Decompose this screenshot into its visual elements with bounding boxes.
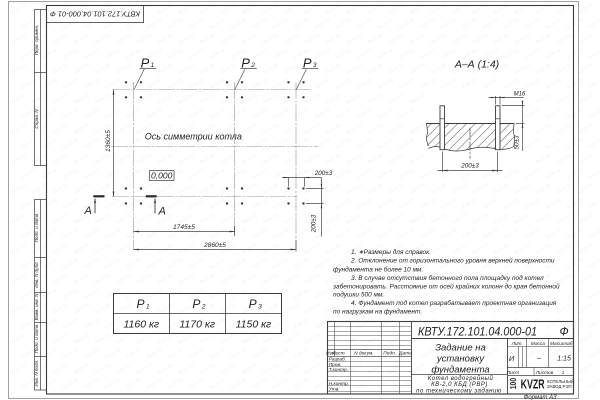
svg-text:kvzr.ru: kvzr.ru [482,17,499,30]
svg-text:Подп. и дата: Подп. и дата [34,213,39,242]
svg-text:kvzr.ru: kvzr.ru [146,107,163,120]
svg-text:kvzr.ru: kvzr.ru [524,77,541,90]
svg-text:kvzr.ru: kvzr.ru [262,92,279,105]
svg-text:kvzr.ru: kvzr.ru [535,152,552,165]
svg-text:kvzr.ru: kvzr.ru [178,242,195,255]
svg-text:1360±5: 1360±5 [105,130,112,152]
svg-text:kvzr.ru: kvzr.ru [472,242,489,255]
svg-text:1: 1 [151,62,155,69]
svg-text:kvzr.ru: kvzr.ru [409,62,426,75]
svg-text:kvzr.ru: kvzr.ru [388,332,405,345]
svg-text:kvzr.ru: kvzr.ru [41,257,58,270]
svg-text:kvzr.ru: kvzr.ru [587,317,600,330]
svg-text:kvzr.ru: kvzr.ru [314,17,331,30]
svg-text:kvzr.ru: kvzr.ru [283,122,300,135]
svg-text:kvzr.ru: kvzr.ru [62,137,79,150]
svg-text:Лит.: Лит. [511,341,523,347]
svg-text:kvzr.ru: kvzr.ru [52,122,69,135]
svg-text:kvzr.ru: kvzr.ru [178,362,195,375]
svg-text:kvzr.ru: kvzr.ru [566,257,583,270]
svg-text:Листов: Листов [535,370,554,376]
svg-text:kvzr.ru: kvzr.ru [577,62,594,75]
svg-text:kvzr.ru: kvzr.ru [346,182,363,195]
svg-text:Лист: Лист [506,370,519,376]
svg-text:kvzr.ru: kvzr.ru [293,17,310,30]
svg-text:kvzr.ru: kvzr.ru [451,212,468,225]
svg-text:kvzr.ru: kvzr.ru [115,362,132,375]
svg-text:kvzr.ru: kvzr.ru [314,77,331,90]
svg-text:kvzr.ru: kvzr.ru [587,17,600,30]
svg-text:kvzr.ru: kvzr.ru [577,212,594,225]
svg-text:kvzr.ru: kvzr.ru [188,107,205,120]
svg-text:kvzr.ru: kvzr.ru [104,377,121,390]
svg-text:kvzr.ru: kvzr.ru [83,257,100,270]
svg-text:kvzr.ru: kvzr.ru [73,152,90,165]
svg-text:kvzr.ru: kvzr.ru [262,152,279,165]
svg-text:kvzr.ru: kvzr.ru [535,122,552,135]
svg-text:kvzr.ru: kvzr.ru [83,167,100,180]
svg-text:kvzr.ru: kvzr.ru [94,302,111,315]
svg-text:Котел водогрейный: Котел водогрейный [428,375,494,382]
svg-text:КВТУ.172.101.04.000-01 Ф: КВТУ.172.101.04.000-01 Ф [50,10,140,17]
svg-text:2860±5: 2860±5 [203,242,226,249]
svg-text:kvzr.ru: kvzr.ru [73,122,90,135]
svg-text:kvzr.ru: kvzr.ru [209,167,226,180]
svg-text:kvzr.ru: kvzr.ru [577,302,594,315]
svg-text:kvzr.ru: kvzr.ru [293,317,310,330]
svg-text:200±3: 200±3 [311,214,318,233]
svg-text:kvzr.ru: kvzr.ru [188,17,205,30]
svg-text:kvzr.ru: kvzr.ru [199,212,216,225]
svg-text:kvzr.ru: kvzr.ru [220,332,237,345]
svg-text:kvzr.ru: kvzr.ru [125,347,142,360]
svg-text:kvzr.ru: kvzr.ru [220,32,237,45]
svg-text:kvzr.ru: kvzr.ru [367,32,384,45]
svg-text:kvzr.ru: kvzr.ru [230,227,247,240]
svg-text:kvzr.ru: kvzr.ru [587,227,600,240]
svg-text:kvzr.ru: kvzr.ru [220,62,237,75]
svg-text:kvzr.ru: kvzr.ru [587,377,600,390]
svg-text:kvzr.ru: kvzr.ru [115,182,132,195]
svg-text:kvzr.ru: kvzr.ru [314,47,331,60]
svg-text:kvzr.ru: kvzr.ru [398,167,415,180]
svg-text:kvzr.ru: kvzr.ru [440,197,457,210]
svg-text:kvzr.ru: kvzr.ru [241,182,258,195]
svg-text:kvzr.ru: kvzr.ru [325,152,342,165]
svg-text:Т.контр.: Т.контр. [329,367,348,373]
svg-text:kvzr.ru: kvzr.ru [398,197,415,210]
svg-text:kvzr.ru: kvzr.ru [167,197,184,210]
svg-text:kvzr.ru: kvzr.ru [73,302,90,315]
svg-text:kvzr.ru: kvzr.ru [31,182,48,195]
svg-text:Подп. и дата: Подп. и дата [34,324,39,353]
svg-text:kvzr.ru: kvzr.ru [545,197,562,210]
svg-text:kvzr.ru: kvzr.ru [556,212,573,225]
svg-text:kvzr.ru: kvzr.ru [272,47,289,60]
svg-text:kvzr.ru: kvzr.ru [199,62,216,75]
svg-text:kvzr.ru: kvzr.ru [293,347,310,360]
svg-text:kvzr.ru: kvzr.ru [314,287,331,300]
svg-text:kvzr.ru: kvzr.ru [587,347,600,360]
svg-text:kvzr.ru: kvzr.ru [409,2,426,15]
svg-text:kvzr.ru: kvzr.ru [52,362,69,375]
svg-text:kvzr.ru: kvzr.ru [10,242,27,255]
svg-text:kvzr.ru: kvzr.ru [556,32,573,45]
svg-text:kvzr.ru: kvzr.ru [10,2,27,15]
svg-text:kvzr.ru: kvzr.ru [83,17,100,30]
svg-text:kvzr.ru: kvzr.ru [10,122,27,135]
svg-text:kvzr.ru: kvzr.ru [514,2,531,15]
svg-text:kvzr.ru: kvzr.ru [73,92,90,105]
svg-text:kvzr.ru: kvzr.ru [503,47,520,60]
svg-text:kvzr.ru: kvzr.ru [188,47,205,60]
svg-text:по нагрузкам на фундамент.: по нагрузкам на фундамент. [333,307,422,315]
svg-text:kvzr.ru: kvzr.ru [188,197,205,210]
svg-text:P: P [241,56,250,71]
svg-text:kvzr.ru: kvzr.ru [94,242,111,255]
svg-text:kvzr.ru: kvzr.ru [451,182,468,195]
svg-text:kvzr.ru: kvzr.ru [94,62,111,75]
svg-text:kvzr.ru: kvzr.ru [346,362,363,375]
svg-text:kvzr.ru: kvzr.ru [262,182,279,195]
svg-text:kvzr.ru: kvzr.ru [283,332,300,345]
svg-text:kvzr.ru: kvzr.ru [146,227,163,240]
svg-text:3: 3 [313,62,317,69]
svg-text:kvzr.ru: kvzr.ru [304,182,321,195]
svg-text:kvzr.ru: kvzr.ru [461,197,478,210]
svg-text:P: P [249,297,257,311]
svg-text:2: 2 [250,62,255,69]
svg-text:200±3: 200±3 [314,170,333,177]
svg-text:kvzr.ru: kvzr.ru [157,92,174,105]
svg-text:kvzr.ru: kvzr.ru [241,332,258,345]
svg-text:kvzr.ru: kvzr.ru [398,17,415,30]
svg-text:kvzr.ru: kvzr.ru [272,227,289,240]
svg-text:1745±5: 1745±5 [173,224,195,231]
svg-text:А: А [158,206,166,218]
svg-text:kvzr.ru: kvzr.ru [566,47,583,60]
svg-text:kvzr.ru: kvzr.ru [346,122,363,135]
svg-text:kvzr.ru: kvzr.ru [461,167,478,180]
svg-text:1: 1 [146,304,150,311]
svg-text:kvzr.ru: kvzr.ru [125,257,142,270]
svg-text:kvzr.ru: kvzr.ru [251,107,268,120]
svg-text:kvzr.ru: kvzr.ru [241,362,258,375]
svg-text:kvzr.ru: kvzr.ru [62,107,79,120]
svg-text:kvzr.ru: kvzr.ru [230,347,247,360]
svg-text:kvzr.ru: kvzr.ru [272,167,289,180]
svg-text:kvzr.ru: kvzr.ru [524,227,541,240]
svg-text:kvzr.ru: kvzr.ru [115,32,132,45]
svg-text:kvzr.ru: kvzr.ru [94,362,111,375]
svg-text:kvzr.ru: kvzr.ru [251,47,268,60]
svg-text:kvzr.ru: kvzr.ru [251,257,268,270]
svg-text:kvzr.ru: kvzr.ru [346,212,363,225]
svg-text:kvzr.ru: kvzr.ru [377,197,394,210]
svg-text:kvzr.ru: kvzr.ru [314,137,331,150]
svg-text:М16: М16 [514,92,526,98]
svg-text:kvzr.ru: kvzr.ru [493,212,510,225]
svg-text:kvzr.ru: kvzr.ru [209,347,226,360]
svg-text:kvzr.ru: kvzr.ru [545,17,562,30]
svg-text:kvzr.ru: kvzr.ru [136,272,153,285]
svg-text:kvzr.ru: kvzr.ru [367,62,384,75]
svg-text:kvzr.ru: kvzr.ru [52,62,69,75]
svg-text:kvzr.ru: kvzr.ru [566,77,583,90]
svg-text:kvzr.ru: kvzr.ru [41,377,58,390]
svg-text:kvzr.ru: kvzr.ru [209,257,226,270]
svg-text:kvzr.ru: kvzr.ru [262,242,279,255]
svg-text:kvzr.ru: kvzr.ru [577,32,594,45]
svg-text:kvzr.ru: kvzr.ru [493,32,510,45]
svg-text:kvzr.ru: kvzr.ru [283,92,300,105]
svg-text:kvzr.ru: kvzr.ru [577,182,594,195]
svg-text:kvzr.ru: kvzr.ru [52,212,69,225]
svg-text:kvzr.ru: kvzr.ru [304,362,321,375]
svg-text:kvzr.ru: kvzr.ru [41,47,58,60]
svg-text:kvzr.ru: kvzr.ru [430,2,447,15]
svg-text:kvzr.ru: kvzr.ru [335,227,352,240]
svg-text:kvzr.ru: kvzr.ru [566,227,583,240]
svg-text:kvzr.ru: kvzr.ru [230,257,247,270]
svg-text:kvzr.ru: kvzr.ru [388,92,405,105]
svg-text:kvzr.ru: kvzr.ru [283,182,300,195]
svg-text:kvzr.ru: kvzr.ru [524,137,541,150]
svg-text:kvzr.ru: kvzr.ru [146,17,163,30]
svg-text:kvzr.ru: kvzr.ru [62,47,79,60]
svg-text:Утв.: Утв. [329,386,340,392]
svg-text:kvzr.ru: kvzr.ru [41,137,58,150]
svg-text:kvzr.ru: kvzr.ru [325,122,342,135]
svg-text:kvzr.ru: kvzr.ru [241,242,258,255]
svg-text:kvzr.ru: kvzr.ru [41,167,58,180]
svg-text:kvzr.ru: kvzr.ru [251,377,268,390]
svg-text:kvzr.ru: kvzr.ru [178,2,195,15]
svg-text:kvzr.ru: kvzr.ru [220,2,237,15]
svg-text:kvzr.ru: kvzr.ru [356,107,373,120]
svg-text:kvzr.ru: kvzr.ru [241,92,258,105]
svg-text:kvzr.ru: kvzr.ru [409,212,426,225]
svg-text:kvzr.ru: kvzr.ru [524,167,541,180]
svg-text:Справ. N: Справ. N [34,109,39,129]
svg-text:kvzr.ru: kvzr.ru [241,2,258,15]
svg-text:kvzr.ru: kvzr.ru [304,152,321,165]
svg-text:200±3: 200±3 [460,162,479,169]
svg-text:kvzr.ru: kvzr.ru [136,332,153,345]
svg-text:kvzr.ru: kvzr.ru [104,47,121,60]
svg-text:kvzr.ru: kvzr.ru [104,17,121,30]
svg-text:kvzr.ru: kvzr.ru [41,347,58,360]
svg-text:kvzr.ru: kvzr.ru [419,77,436,90]
svg-text:N докум.: N докум. [354,351,373,357]
svg-text:kvzr.ru: kvzr.ru [314,317,331,330]
svg-text:Инв. N подл.: Инв. N подл. [34,360,39,387]
svg-text:kvzr.ru: kvzr.ru [83,317,100,330]
svg-text:kvzr.ru: kvzr.ru [430,32,447,45]
svg-text:kvzr.ru: kvzr.ru [272,197,289,210]
svg-text:kvzr.ru: kvzr.ru [157,2,174,15]
svg-text:kvzr.ru: kvzr.ru [262,32,279,45]
svg-text:kvzr.ru: kvzr.ru [430,182,447,195]
svg-text:kvzr.ru: kvzr.ru [409,152,426,165]
svg-text:kvzr.ru: kvzr.ru [304,332,321,345]
svg-text:kvzr.ru: kvzr.ru [335,77,352,90]
svg-text:kvzr.ru: kvzr.ru [83,107,100,120]
svg-text:kvzr.ru: kvzr.ru [556,302,573,315]
svg-text:kvzr.ru: kvzr.ru [482,197,499,210]
svg-text:kvzr.ru: kvzr.ru [283,362,300,375]
svg-text:kvzr.ru: kvzr.ru [545,137,562,150]
svg-text:И: И [509,354,515,363]
svg-text:kvzr.ru: kvzr.ru [272,317,289,330]
svg-text:kvzr.ru: kvzr.ru [104,167,121,180]
svg-text:kvzr.ru: kvzr.ru [262,62,279,75]
svg-text:kvzr.ru: kvzr.ru [409,32,426,45]
svg-text:kvzr.ru: kvzr.ru [524,107,541,120]
svg-text:kvzr.ru: kvzr.ru [503,197,520,210]
svg-text:kvzr.ru: kvzr.ru [31,2,48,15]
svg-text:kvzr.ru: kvzr.ru [335,167,352,180]
svg-text:kvzr.ru: kvzr.ru [241,212,258,225]
svg-text:kvzr.ru: kvzr.ru [94,152,111,165]
svg-text:kvzr.ru: kvzr.ru [556,2,573,15]
svg-text:kvzr.ru: kvzr.ru [241,122,258,135]
svg-text:kvzr.ru: kvzr.ru [62,257,79,270]
svg-text:kvzr.ru: kvzr.ru [262,122,279,135]
svg-text:kvzr.ru: kvzr.ru [146,377,163,390]
svg-text:kvzr.ru: kvzr.ru [209,77,226,90]
svg-text:3. В случае отсутствия бетонно: 3. В случае отсутствия бетонного пола пл… [351,274,544,282]
svg-text:kvzr.ru: kvzr.ru [115,212,132,225]
svg-text:А–А (1:4): А–А (1:4) [454,59,499,71]
svg-text:по техническому заданию: по техническому заданию [416,389,502,395]
svg-text:kvzr.ru: kvzr.ru [314,197,331,210]
svg-text:kvzr.ru: kvzr.ru [209,17,226,30]
svg-text:kvzr.ru: kvzr.ru [524,197,541,210]
svg-text:1: 1 [562,370,565,376]
svg-text:kvzr.ru: kvzr.ru [335,107,352,120]
svg-text:kvzr.ru: kvzr.ru [73,332,90,345]
svg-text:kvzr.ru: kvzr.ru [283,62,300,75]
svg-text:kvzr.ru: kvzr.ru [125,47,142,60]
svg-text:kvzr.ru: kvzr.ru [31,242,48,255]
svg-text:kvzr.ru: kvzr.ru [104,347,121,360]
svg-text:kvzr.ru: kvzr.ru [335,137,352,150]
svg-text:kvzr.ru: kvzr.ru [535,182,552,195]
svg-text:kvzr.ru: kvzr.ru [104,77,121,90]
svg-text:kvzr.ru: kvzr.ru [325,32,342,45]
svg-text:kvzr.ru: kvzr.ru [157,272,174,285]
svg-text:kvzr.ru: kvzr.ru [199,272,216,285]
svg-text:kvzr.ru: kvzr.ru [283,32,300,45]
svg-text:P: P [303,56,312,71]
svg-text:kvzr.ru: kvzr.ru [398,47,415,60]
svg-text:kvzr.ru: kvzr.ru [115,92,132,105]
svg-text:kvzr.ru: kvzr.ru [545,47,562,60]
svg-text:kvzr.ru: kvzr.ru [461,77,478,90]
svg-text:kvzr.ru: kvzr.ru [178,272,195,285]
svg-text:kvzr.ru: kvzr.ru [367,92,384,105]
svg-text:kvzr.ru: kvzr.ru [587,47,600,60]
svg-text:kvzr.ru: kvzr.ru [545,227,562,240]
svg-text:kvzr.ru: kvzr.ru [545,77,562,90]
svg-text:kvzr.ru: kvzr.ru [52,302,69,315]
svg-text:kvzr.ru: kvzr.ru [251,77,268,90]
svg-text:kvzr.ru: kvzr.ru [230,77,247,90]
svg-text:2. Отклонение от горизонтально: 2. Отклонение от горизонтального уровня … [350,257,555,265]
svg-text:kvzr.ru: kvzr.ru [262,212,279,225]
svg-text:kvzr.ru: kvzr.ru [52,242,69,255]
svg-text:kvzr.ru: kvzr.ru [52,272,69,285]
svg-text:kvzr.ru: kvzr.ru [178,182,195,195]
svg-text:kvzr.ru: kvzr.ru [325,62,342,75]
svg-text:kvzr.ru: kvzr.ru [577,2,594,15]
svg-text:kvzr.ru: kvzr.ru [398,77,415,90]
svg-text:kvzr.ru: kvzr.ru [587,107,600,120]
svg-text:kvzr.ru: kvzr.ru [482,227,499,240]
svg-text:kvzr.ru: kvzr.ru [136,152,153,165]
svg-text:Подп.: Подп. [383,351,396,357]
svg-text:Лист: Лист [331,351,344,357]
svg-text:kvzr.ru: kvzr.ru [503,17,520,30]
svg-text:kvzr.ru: kvzr.ru [41,287,58,300]
svg-text:kvzr.ru: kvzr.ru [535,92,552,105]
svg-text:kvzr.ru: kvzr.ru [356,47,373,60]
svg-text:kvzr.ru: kvzr.ru [440,77,457,90]
svg-text:kvzr.ru: kvzr.ru [209,227,226,240]
svg-text:kvzr.ru: kvzr.ru [524,47,541,60]
svg-text:kvzr.ru: kvzr.ru [157,62,174,75]
svg-text:kvzr.ru: kvzr.ru [356,17,373,30]
svg-text:kvzr.ru: kvzr.ru [304,2,321,15]
svg-text:kvzr.ru: kvzr.ru [377,47,394,60]
svg-text:kvzr.ru: kvzr.ru [178,32,195,45]
svg-text:kvzr.ru: kvzr.ru [377,377,394,390]
svg-text:kvzr.ru: kvzr.ru [83,77,100,90]
svg-text:kvzr.ru: kvzr.ru [94,212,111,225]
svg-text:kvzr.ru: kvzr.ru [346,32,363,45]
svg-text:kvzr.ru: kvzr.ru [62,197,79,210]
svg-text:kvzr.ru: kvzr.ru [188,77,205,90]
svg-text:kvzr.ru: kvzr.ru [283,152,300,165]
svg-text:kvzr.ru: kvzr.ru [115,62,132,75]
svg-text:kvzr.ru: kvzr.ru [556,182,573,195]
svg-text:kvzr.ru: kvzr.ru [262,332,279,345]
svg-text:kvzr.ru: kvzr.ru [388,62,405,75]
svg-text:kvzr.ru: kvzr.ru [566,167,583,180]
svg-text:1150 кг: 1150 кг [236,319,272,331]
svg-text:фундамента не более 10 мм.: фундамента не более 10 мм. [333,265,424,273]
svg-text:kvzr.ru: kvzr.ru [451,2,468,15]
svg-text:kvzr.ru: kvzr.ru [104,317,121,330]
svg-text:kvzr.ru: kvzr.ru [272,137,289,150]
svg-text:kvzr.ru: kvzr.ru [577,332,594,345]
svg-text:kvzr.ru: kvzr.ru [545,107,562,120]
svg-text:kvzr.ru: kvzr.ru [577,122,594,135]
svg-text:kvzr.ru: kvzr.ru [62,77,79,90]
svg-text:kvzr.ru: kvzr.ru [167,347,184,360]
svg-text:kvzr.ru: kvzr.ru [199,362,216,375]
svg-text:kvzr.ru: kvzr.ru [388,152,405,165]
svg-text:kvzr.ru: kvzr.ru [293,137,310,150]
svg-text:kvzr.ru: kvzr.ru [167,77,184,90]
svg-text:kvzr.ru: kvzr.ru [62,317,79,330]
svg-text:kvzr.ru: kvzr.ru [230,167,247,180]
svg-text:kvzr.ru: kvzr.ru [314,107,331,120]
svg-text:kvzr.ru: kvzr.ru [314,257,331,270]
svg-text:kvzr.ru: kvzr.ru [62,287,79,300]
svg-text:kvzr.ru: kvzr.ru [199,2,216,15]
